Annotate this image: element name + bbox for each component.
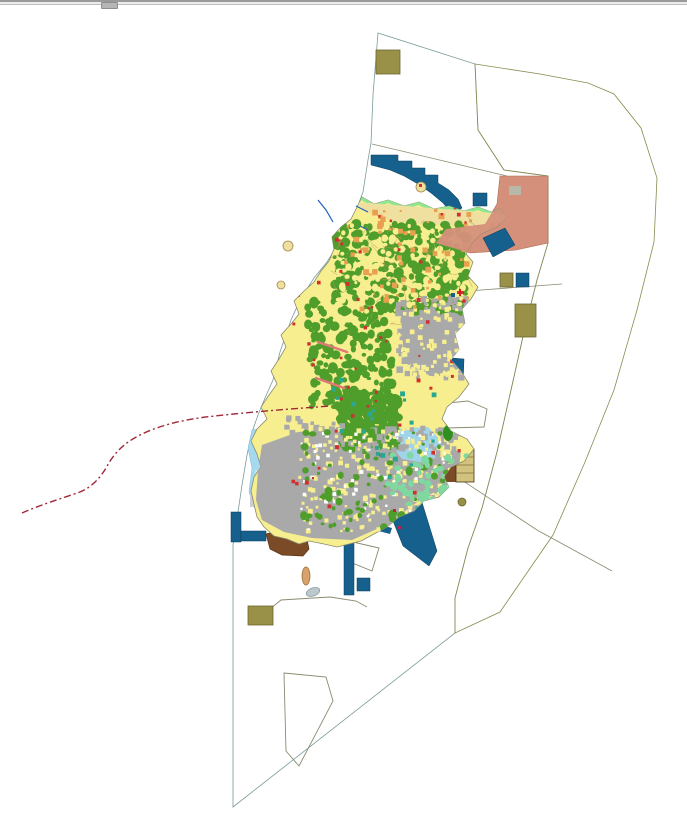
west-islet-1 — [283, 241, 293, 251]
planned-area-outline-south — [350, 542, 379, 571]
navy-block-ne-1 — [473, 193, 487, 206]
khaki-block-north — [376, 50, 400, 74]
south-navy-square — [357, 578, 370, 591]
khaki-block-east-large — [515, 304, 536, 337]
khaki-dot-southeast — [458, 498, 466, 506]
offshore-buffer-zone — [455, 64, 657, 633]
map-canvas[interactable] — [0, 5, 687, 821]
south-boundary-polyline — [270, 597, 367, 609]
gray-islet — [305, 586, 321, 598]
west-pier-vertical — [231, 512, 241, 542]
tan-islet — [302, 567, 310, 585]
zone-boundary-line-east — [468, 284, 562, 291]
navy-block-east — [516, 273, 529, 287]
west-pier-horizontal — [241, 531, 266, 541]
south-pier-vertical — [344, 542, 354, 595]
dark-green-patch — [443, 425, 453, 441]
north-islet-mark — [419, 184, 422, 187]
map-viewport[interactable] — [0, 0, 687, 821]
planned-area-outline-bottom — [284, 673, 333, 766]
west-islet-2 — [277, 281, 285, 289]
khaki-block-south — [248, 606, 273, 625]
khaki-block-east-small — [500, 273, 513, 287]
salmon-zone-gray-patch — [509, 186, 521, 195]
